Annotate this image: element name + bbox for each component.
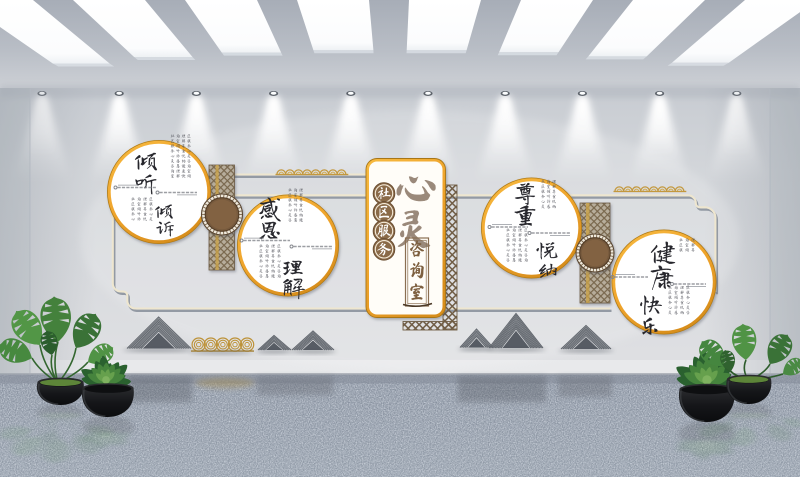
svg-text:社: 社 <box>376 186 391 201</box>
svg-text:咨: 咨 <box>408 240 426 258</box>
svg-text:社区服务心灵咨: 社区服务心灵咨 <box>287 188 293 223</box>
svg-text:理解尊重悦纳: 理解尊重悦纳 <box>551 179 557 209</box>
svg-text:室: 室 <box>408 283 426 301</box>
svg-text:社区服: 社区服 <box>678 238 684 253</box>
svg-text:社区服务心灵: 社区服务心灵 <box>667 285 673 315</box>
svg-text:询室倾听诉感恩: 询室倾听诉感恩 <box>292 188 298 223</box>
svg-text:心: 心 <box>392 163 439 210</box>
svg-text:诉: 诉 <box>155 218 175 238</box>
svg-text:社区服务心灵咨: 社区服务心灵咨 <box>258 244 264 279</box>
svg-text:恩: 恩 <box>257 216 282 241</box>
svg-text:区: 区 <box>376 205 391 220</box>
svg-text:区服务心灵咨询: 区服务心灵咨询 <box>523 228 529 263</box>
svg-text:区服务心灵咨: 区服务心灵咨 <box>685 285 691 315</box>
svg-text:服: 服 <box>376 223 391 238</box>
svg-text:理解尊重悦纳健: 理解尊重悦纳健 <box>298 188 304 223</box>
svg-text:理解尊重悦纳: 理解尊重悦纳 <box>679 285 685 315</box>
svg-text:询室倾听诉感: 询室倾听诉感 <box>545 179 551 209</box>
svg-text:询室倾听诉感恩: 询室倾听诉感恩 <box>264 244 270 279</box>
svg-text:悦: 悦 <box>536 239 559 260</box>
svg-text:询室倾听诉感恩理解: 询室倾听诉感恩理解 <box>175 134 181 179</box>
svg-text:社区服务心灵: 社区服务心灵 <box>540 179 546 209</box>
svg-text:询室倾听诉感恩: 询室倾听诉感恩 <box>511 228 517 263</box>
svg-text:务: 务 <box>376 242 391 257</box>
svg-text:理: 理 <box>282 256 304 278</box>
svg-text:询室倾听诉: 询室倾听诉 <box>136 197 142 222</box>
svg-text:询: 询 <box>408 262 426 280</box>
svg-text:理解尊: 理解尊 <box>690 238 696 253</box>
svg-text:社区服务心灵咨: 社区服务心灵咨 <box>505 228 511 263</box>
svg-text:询室倾听诉感: 询室倾听诉感 <box>673 285 679 315</box>
svg-text:理解尊重悦: 理解尊重悦 <box>142 197 148 222</box>
svg-text:解: 解 <box>283 277 305 300</box>
svg-text:健: 健 <box>650 239 676 265</box>
svg-text:理解尊重悦纳健: 理解尊重悦纳健 <box>517 228 523 263</box>
svg-text:社区服务心灵咨询室: 社区服务心灵咨询室 <box>169 134 175 179</box>
svg-text:快: 快 <box>640 292 663 315</box>
svg-text:重: 重 <box>512 201 537 226</box>
svg-text:理解尊重悦纳健: 理解尊重悦纳健 <box>270 244 276 279</box>
svg-text:纳: 纳 <box>538 259 559 280</box>
svg-text:询室倾: 询室倾 <box>684 238 690 253</box>
svg-text:听: 听 <box>133 170 158 195</box>
svg-text:区服务心灵咨询室倾: 区服务心灵咨询室倾 <box>186 134 192 179</box>
svg-text:区服务心灵: 区服务心灵 <box>148 197 154 222</box>
svg-text:社区服务心: 社区服务心 <box>130 197 136 222</box>
svg-text:乐: 乐 <box>639 313 662 336</box>
svg-text:理解尊重悦纳健康快: 理解尊重悦纳健康快 <box>180 134 186 179</box>
svg-text:倾: 倾 <box>133 147 158 172</box>
svg-text:区服务心灵咨询: 区服务心灵咨询 <box>276 244 282 279</box>
